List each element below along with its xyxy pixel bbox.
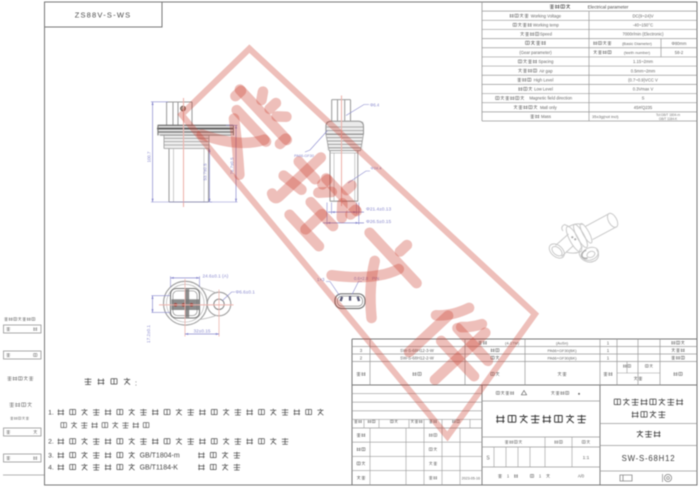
- svg-text::: :: [135, 381, 137, 388]
- svg-text:-40~150°C: -40~150°C: [633, 22, 653, 27]
- svg-text:Φ21.4±0.13: Φ21.4±0.13: [366, 207, 391, 213]
- svg-text:Φ6.4: Φ6.4: [370, 102, 380, 107]
- svg-text:Φ6.6±0.1: Φ6.6±0.1: [236, 290, 256, 295]
- svg-text:PA66+GF30(BK): PA66+GF30(BK): [547, 348, 577, 353]
- svg-text:SW-S-68H12-2-W: SW-S-68H12-2-W: [400, 355, 434, 360]
- svg-text:1: 1: [539, 474, 542, 479]
- svg-text:(Basic Diameter): (Basic Diameter): [622, 41, 652, 46]
- svg-text:PA66+GF30(BK): PA66+GF30(BK): [547, 355, 577, 360]
- svg-text:(0.7~0.9)VCC V: (0.7~0.9)VCC V: [628, 77, 658, 82]
- svg-text:Magnetic field direction: Magnetic field direction: [529, 96, 572, 101]
- svg-text:0.3Vmax V: 0.3Vmax V: [633, 87, 654, 92]
- svg-text:(teeth number): (teeth number): [624, 50, 651, 55]
- svg-text:58-2: 58-2: [675, 50, 684, 55]
- svg-text:(AuSn): (AuSn): [556, 340, 569, 345]
- svg-text:S: S: [486, 456, 490, 462]
- svg-text:A/0: A/0: [578, 474, 585, 479]
- svg-text:100.7: 100.7: [147, 151, 152, 163]
- svg-text:3.: 3.: [48, 453, 54, 460]
- svg-text:32±0.15: 32±0.15: [194, 329, 211, 334]
- svg-text:High Level: High Level: [534, 77, 554, 82]
- svg-text:ZS88V-S-WS: ZS88V-S-WS: [75, 11, 132, 20]
- svg-text:Working Voltage: Working Voltage: [531, 13, 562, 18]
- svg-text:Low Level: Low Level: [534, 87, 553, 92]
- svg-text:2: 2: [360, 355, 363, 360]
- svg-text:53.7±0.5: 53.7±0.5: [203, 163, 208, 181]
- svg-text:1.: 1.: [48, 410, 54, 417]
- svg-text:1.15~2mm: 1.15~2mm: [633, 59, 653, 64]
- svg-text:Working temp: Working temp: [533, 22, 559, 27]
- svg-text:1: 1: [607, 348, 610, 353]
- svg-text:4.: 4.: [48, 465, 54, 472]
- svg-text:Mass: Mass: [541, 114, 551, 119]
- svg-text:Φ80mm: Φ80mm: [672, 41, 687, 46]
- svg-text:17.2±0.1: 17.2±0.1: [146, 325, 151, 343]
- svg-text:24.6±0.1 (A): 24.6±0.1 (A): [203, 274, 229, 279]
- svg-text:35±3g(not incl): 35±3g(not incl): [592, 114, 619, 119]
- svg-text:2.: 2.: [48, 439, 54, 446]
- svg-text:1:1: 1:1: [583, 455, 590, 461]
- svg-text:(Gear parameter): (Gear parameter): [519, 50, 552, 55]
- svg-text:GB/T1804-m: GB/T1804-m: [140, 453, 180, 460]
- svg-text:45#/Q235: 45#/Q235: [634, 105, 653, 110]
- svg-text:GB/T1184-K: GB/T1184-K: [140, 465, 179, 472]
- svg-text:Speed: Speed: [540, 32, 553, 37]
- svg-text:1: 1: [607, 355, 610, 360]
- svg-text:●: ●: [578, 391, 581, 396]
- svg-text:GB/T 1184-K: GB/T 1184-K: [659, 117, 678, 121]
- svg-text:0.5mm~2mm: 0.5mm~2mm: [631, 68, 656, 73]
- svg-text:Spacing: Spacing: [538, 59, 554, 64]
- svg-text:Matl only: Matl only: [540, 105, 558, 110]
- svg-text:SW-S-68H12: SW-S-68H12: [622, 454, 676, 463]
- svg-text:DC(9~24)V: DC(9~24)V: [632, 13, 653, 18]
- svg-text:Φ26.5±0.15: Φ26.5±0.15: [366, 219, 391, 225]
- svg-text:3: 3: [360, 348, 363, 353]
- svg-text:1: 1: [607, 340, 610, 345]
- svg-text:2023-05-16: 2023-05-16: [462, 476, 480, 480]
- svg-text:S: S: [642, 96, 645, 101]
- svg-text:1: 1: [507, 474, 510, 479]
- svg-text:Electrical parameter: Electrical parameter: [588, 4, 629, 9]
- svg-text:Air gap: Air gap: [539, 68, 553, 73]
- svg-text:7000r/min (Electronic): 7000r/min (Electronic): [623, 32, 665, 37]
